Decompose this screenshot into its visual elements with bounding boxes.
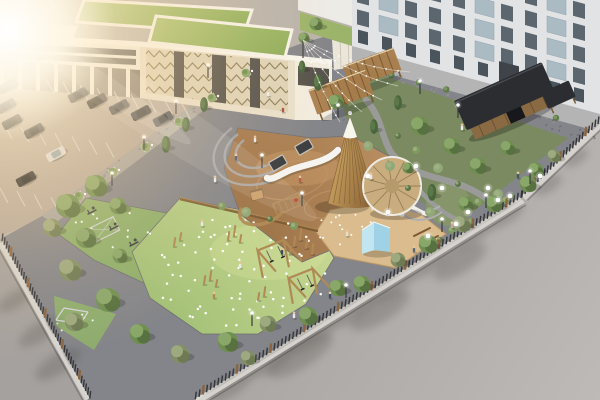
sun-flare (0, 0, 600, 400)
sun-core (0, 0, 600, 400)
scene-svg (0, 0, 600, 400)
architectural-render (0, 0, 600, 400)
